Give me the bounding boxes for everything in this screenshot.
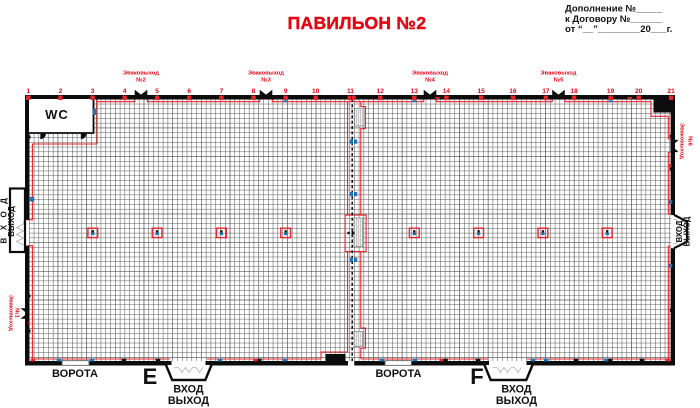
svg-text:3: 3: [91, 88, 95, 95]
svg-text:Эваковыход: Эваковыход: [248, 71, 284, 77]
svg-text:7: 7: [220, 88, 224, 95]
svg-text:ВЫХОД: ВЫХОД: [682, 216, 691, 246]
svg-text:13: 13: [411, 88, 419, 95]
svg-text:19: 19: [607, 88, 615, 95]
svg-text:Эваковыход: Эваковыход: [541, 71, 577, 77]
svg-text:№6: №6: [686, 136, 692, 146]
svg-text:17: 17: [542, 88, 550, 95]
svg-text:10: 10: [312, 88, 320, 95]
svg-text:16: 16: [509, 88, 517, 95]
svg-text:от “__”________20___г.: от “__”________20___г.: [565, 24, 672, 35]
svg-text:ВХОД: ВХОД: [173, 383, 204, 395]
svg-text:F: F: [470, 364, 483, 389]
svg-text:ВОРОТА: ВОРОТА: [52, 368, 98, 380]
svg-text:WC: WC: [45, 107, 69, 122]
svg-text:14: 14: [443, 88, 451, 95]
svg-text:ВХОД: ВХОД: [501, 383, 532, 395]
svg-text:1: 1: [26, 88, 30, 95]
svg-text:21: 21: [667, 88, 675, 95]
svg-text:6: 6: [187, 88, 191, 95]
svg-text:№4: №4: [425, 78, 435, 84]
svg-text:Эваковыход: Эваковыход: [123, 71, 159, 77]
svg-text:15: 15: [478, 88, 486, 95]
svg-text:2: 2: [59, 88, 63, 95]
svg-text:4: 4: [123, 88, 127, 95]
svg-text:8: 8: [252, 88, 256, 95]
svg-text:Эваковыход: Эваковыход: [7, 295, 13, 331]
svg-text:11: 11: [347, 88, 354, 95]
svg-text:№2: №2: [136, 78, 146, 84]
svg-text:ВЫХОД: ВЫХОД: [7, 206, 16, 237]
svg-text:№1: №1: [14, 308, 20, 318]
svg-text:ПАВИЛЬОН №2: ПАВИЛЬОН №2: [288, 13, 427, 33]
svg-text:20: 20: [635, 88, 643, 95]
svg-text:ВЫХОД: ВЫХОД: [168, 395, 210, 407]
svg-text:12: 12: [377, 88, 385, 95]
svg-text:№5: №5: [554, 78, 564, 84]
svg-text:Эваковыход: Эваковыход: [679, 123, 685, 159]
svg-text:5: 5: [155, 88, 159, 95]
svg-text:№3: №3: [261, 78, 271, 84]
svg-text:Эваковыход: Эваковыход: [412, 71, 448, 77]
svg-text:9: 9: [284, 88, 288, 95]
svg-text:E: E: [143, 364, 158, 389]
svg-text:ВОРОТА: ВОРОТА: [376, 368, 422, 380]
svg-text:ВЫХОД: ВЫХОД: [496, 395, 538, 407]
svg-text:18: 18: [570, 88, 578, 95]
